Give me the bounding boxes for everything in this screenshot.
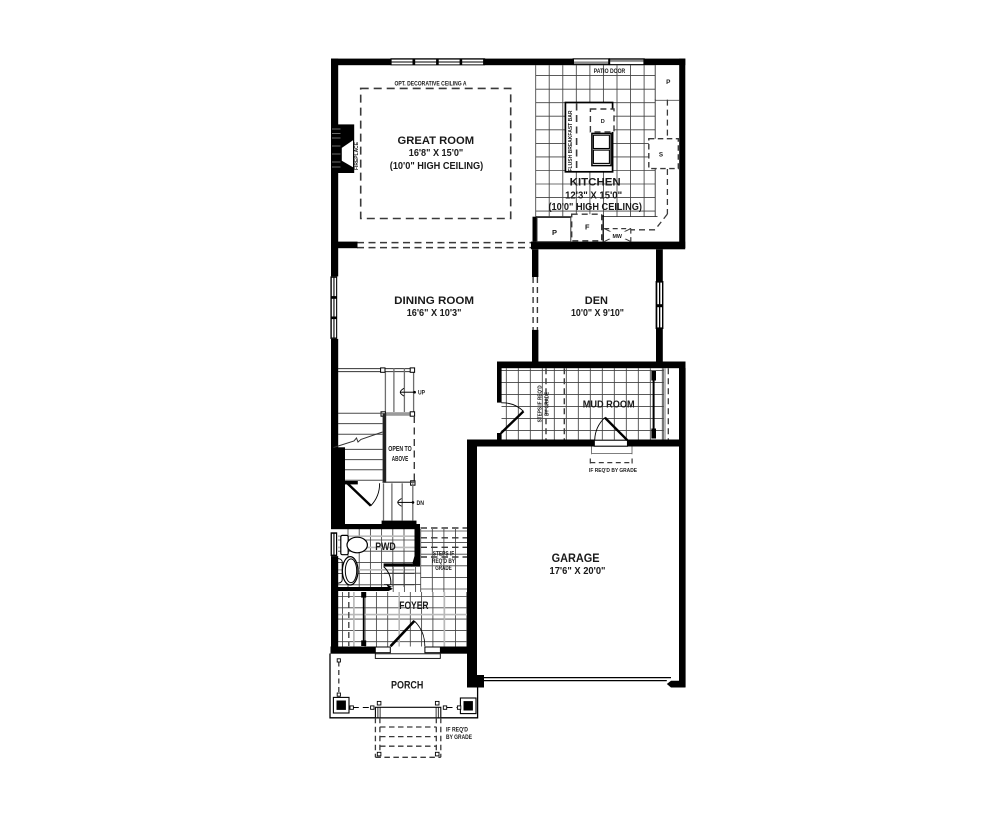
svg-text:P: P [666,80,670,86]
svg-text:PWD: PWD [375,541,396,553]
svg-text:STEPS IF REQ'D: STEPS IF REQ'D [538,385,544,422]
svg-text:REQ'D BY: REQ'D BY [432,559,455,565]
svg-text:UP: UP [418,390,426,397]
svg-text:FIREPLACE: FIREPLACE [354,142,360,170]
svg-text:DN: DN [417,500,425,507]
svg-text:FLUSH BREAKFAST BAR: FLUSH BREAKFAST BAR [568,110,574,171]
svg-text:S: S [659,152,663,158]
svg-text:10'0" X 9'10": 10'0" X 9'10" [571,308,624,319]
svg-text:D: D [601,119,605,125]
svg-text:16'6" X 10'3": 16'6" X 10'3" [407,308,462,319]
svg-text:PATIO DOOR: PATIO DOOR [594,69,626,75]
svg-text:BY GRADE: BY GRADE [544,392,550,416]
svg-text:GREAT ROOM: GREAT ROOM [398,135,475,147]
svg-text:GARAGE: GARAGE [552,551,600,565]
svg-text:17'6" X 20'0": 17'6" X 20'0" [550,566,606,577]
svg-text:OPEN TO: OPEN TO [388,446,412,453]
svg-text:KITCHEN: KITCHEN [570,176,621,188]
svg-text:IF REQ'D: IF REQ'D [446,728,469,734]
svg-text:IF REQ'D BY GRADE: IF REQ'D BY GRADE [589,468,637,474]
svg-text:F: F [585,225,590,232]
svg-text:PORCH: PORCH [391,680,424,692]
svg-text:ABOVE: ABOVE [392,456,409,463]
svg-text:(10'0" HIGH CEILING): (10'0" HIGH CEILING) [548,202,642,213]
svg-text:BY GRADE: BY GRADE [446,735,472,741]
svg-text:P: P [552,230,557,237]
svg-text:16'8" X 15'0": 16'8" X 15'0" [409,148,464,159]
svg-text:OPT. DECORATIVE CEILING A: OPT. DECORATIVE CEILING A [395,82,468,88]
svg-text:MW: MW [612,234,622,240]
svg-text:STEPS IF: STEPS IF [433,552,455,558]
svg-text:(10'0" HIGH CEILING): (10'0" HIGH CEILING) [390,161,484,172]
svg-text:12'3" X 15'0": 12'3" X 15'0" [565,191,622,202]
svg-text:DEN: DEN [585,295,608,307]
svg-text:GRADE: GRADE [435,566,452,572]
svg-text:DINING ROOM: DINING ROOM [394,295,474,307]
svg-text:MUD ROOM: MUD ROOM [583,400,635,411]
svg-text:FOYER: FOYER [399,600,428,612]
